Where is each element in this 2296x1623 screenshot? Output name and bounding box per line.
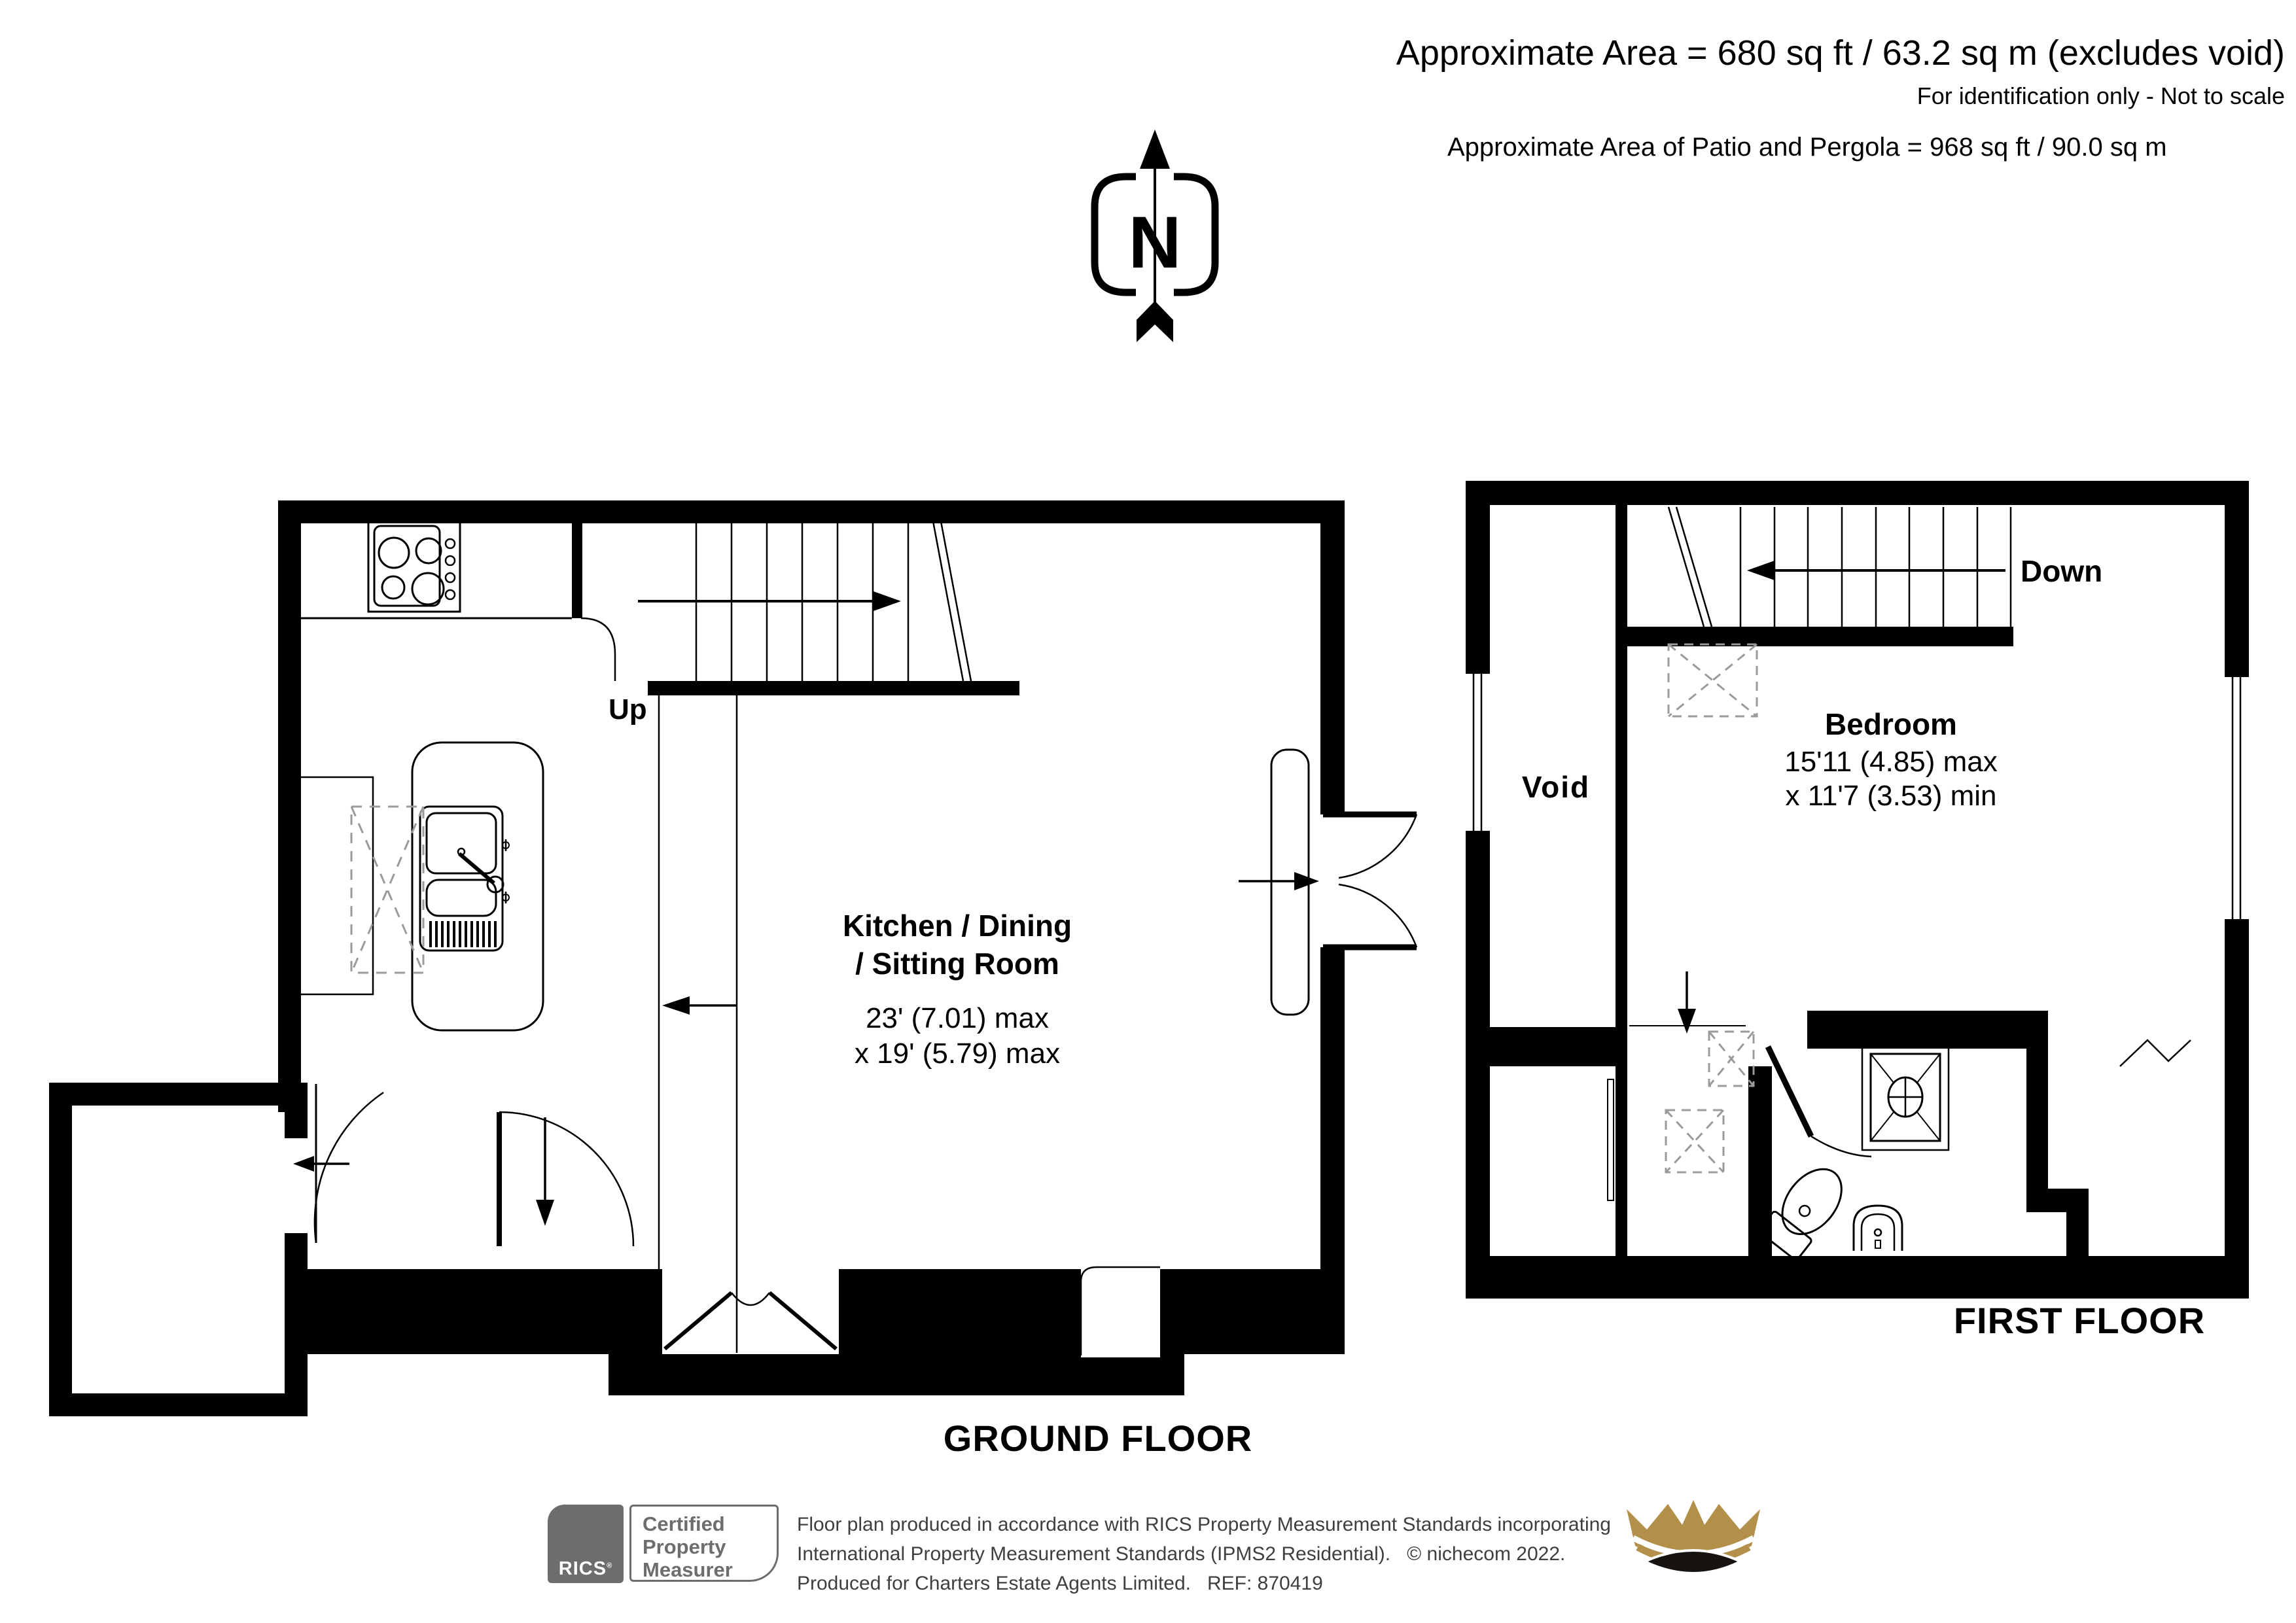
toilet-icon xyxy=(1758,1158,1854,1261)
window-right xyxy=(2233,677,2240,919)
void-label: Void xyxy=(1522,769,1590,805)
disclaimer-line2: International Property Measurement Stand… xyxy=(797,1539,1611,1569)
door-arrow-down-icon xyxy=(536,1200,554,1226)
kitchen-dimension-line2: x 19' (5.79) max xyxy=(855,1038,1060,1070)
stairs-down-label: Down xyxy=(2021,553,2102,589)
first-floor-plan xyxy=(1466,481,2249,1299)
stairs-down-arrow-icon xyxy=(1747,561,1775,580)
kitchen-island-sink xyxy=(412,742,543,1030)
entrance-double-doors xyxy=(665,1293,836,1349)
staircase-down xyxy=(1669,507,2011,627)
crown-logo-icon xyxy=(1627,1500,1760,1573)
ground-floor-title: GROUND FLOOR xyxy=(944,1417,1252,1459)
basin-icon xyxy=(1854,1206,1902,1251)
dressing-area xyxy=(1608,971,1746,1259)
patio-step-recess xyxy=(1081,1266,1160,1357)
hob-icon xyxy=(368,520,460,612)
window-left xyxy=(1474,674,1481,831)
door-arrow-right-icon xyxy=(1294,872,1319,890)
bedroom-label: Bedroom xyxy=(1825,707,1957,742)
bedroom-dimension-line2: x 11'7 (3.53) min xyxy=(1785,780,1996,812)
kitchen-room-label-line2: / Sitting Room xyxy=(855,946,1059,981)
first-floor-title: FIRST FLOOR xyxy=(1954,1299,2205,1342)
bedroom-dimension-line1: 15'11 (4.85) max xyxy=(1784,746,1998,778)
first-floor-walls xyxy=(1466,481,2249,1299)
drainer-lines xyxy=(431,921,495,947)
kitchen-dimension-line1: 23' (7.01) max xyxy=(866,1002,1049,1035)
certified-property-measurer-badge: Certified Property Measurer xyxy=(629,1505,779,1582)
north-label: N xyxy=(1129,200,1182,285)
disclaimer-line1: Floor plan produced in accordance with R… xyxy=(797,1510,1611,1539)
disclaimer-text: Floor plan produced in accordance with R… xyxy=(797,1510,1611,1598)
rics-logo-label: RICS® xyxy=(548,1558,624,1580)
door-arrow-left-icon xyxy=(293,1156,314,1172)
wall-break-zigzag-icon xyxy=(2120,1040,2191,1066)
opening-arrow-down-icon xyxy=(1678,1009,1696,1034)
storage-dashed-boxes xyxy=(1666,644,1757,1172)
approximate-area-text: Approximate Area = 680 sq ft / 63.2 sq m… xyxy=(1396,33,2285,73)
compass-arrowhead-icon xyxy=(1140,130,1170,169)
certified-property-measurer-text: Certified Property Measurer xyxy=(643,1512,733,1581)
identification-note-text: For identification only - Not to scale xyxy=(1917,82,2285,110)
staircase-up xyxy=(638,521,971,681)
disclaimer-line3: Produced for Charters Estate Agents Limi… xyxy=(797,1569,1611,1598)
door-inner-hall xyxy=(499,1112,633,1246)
stairs-up-arrow-icon xyxy=(874,591,901,611)
stairs-up-label: Up xyxy=(609,693,647,726)
floorplan-page: Approximate Area = 680 sq ft / 63.2 sq m… xyxy=(0,0,2296,1623)
shower-icon xyxy=(1862,1045,1949,1150)
compass-fletching-icon xyxy=(1137,301,1173,342)
opening-arrow-left-icon xyxy=(662,996,690,1015)
patio-area-text: Approximate Area of Patio and Pergola = … xyxy=(1447,133,2167,162)
kitchen-room-label-line1: Kitchen / Dining xyxy=(843,908,1072,943)
door-ensuite xyxy=(1768,1047,1871,1157)
ground-floor-plan xyxy=(49,500,1417,1416)
rics-logo: RICS® xyxy=(548,1505,624,1583)
partition-lines xyxy=(659,695,737,1353)
